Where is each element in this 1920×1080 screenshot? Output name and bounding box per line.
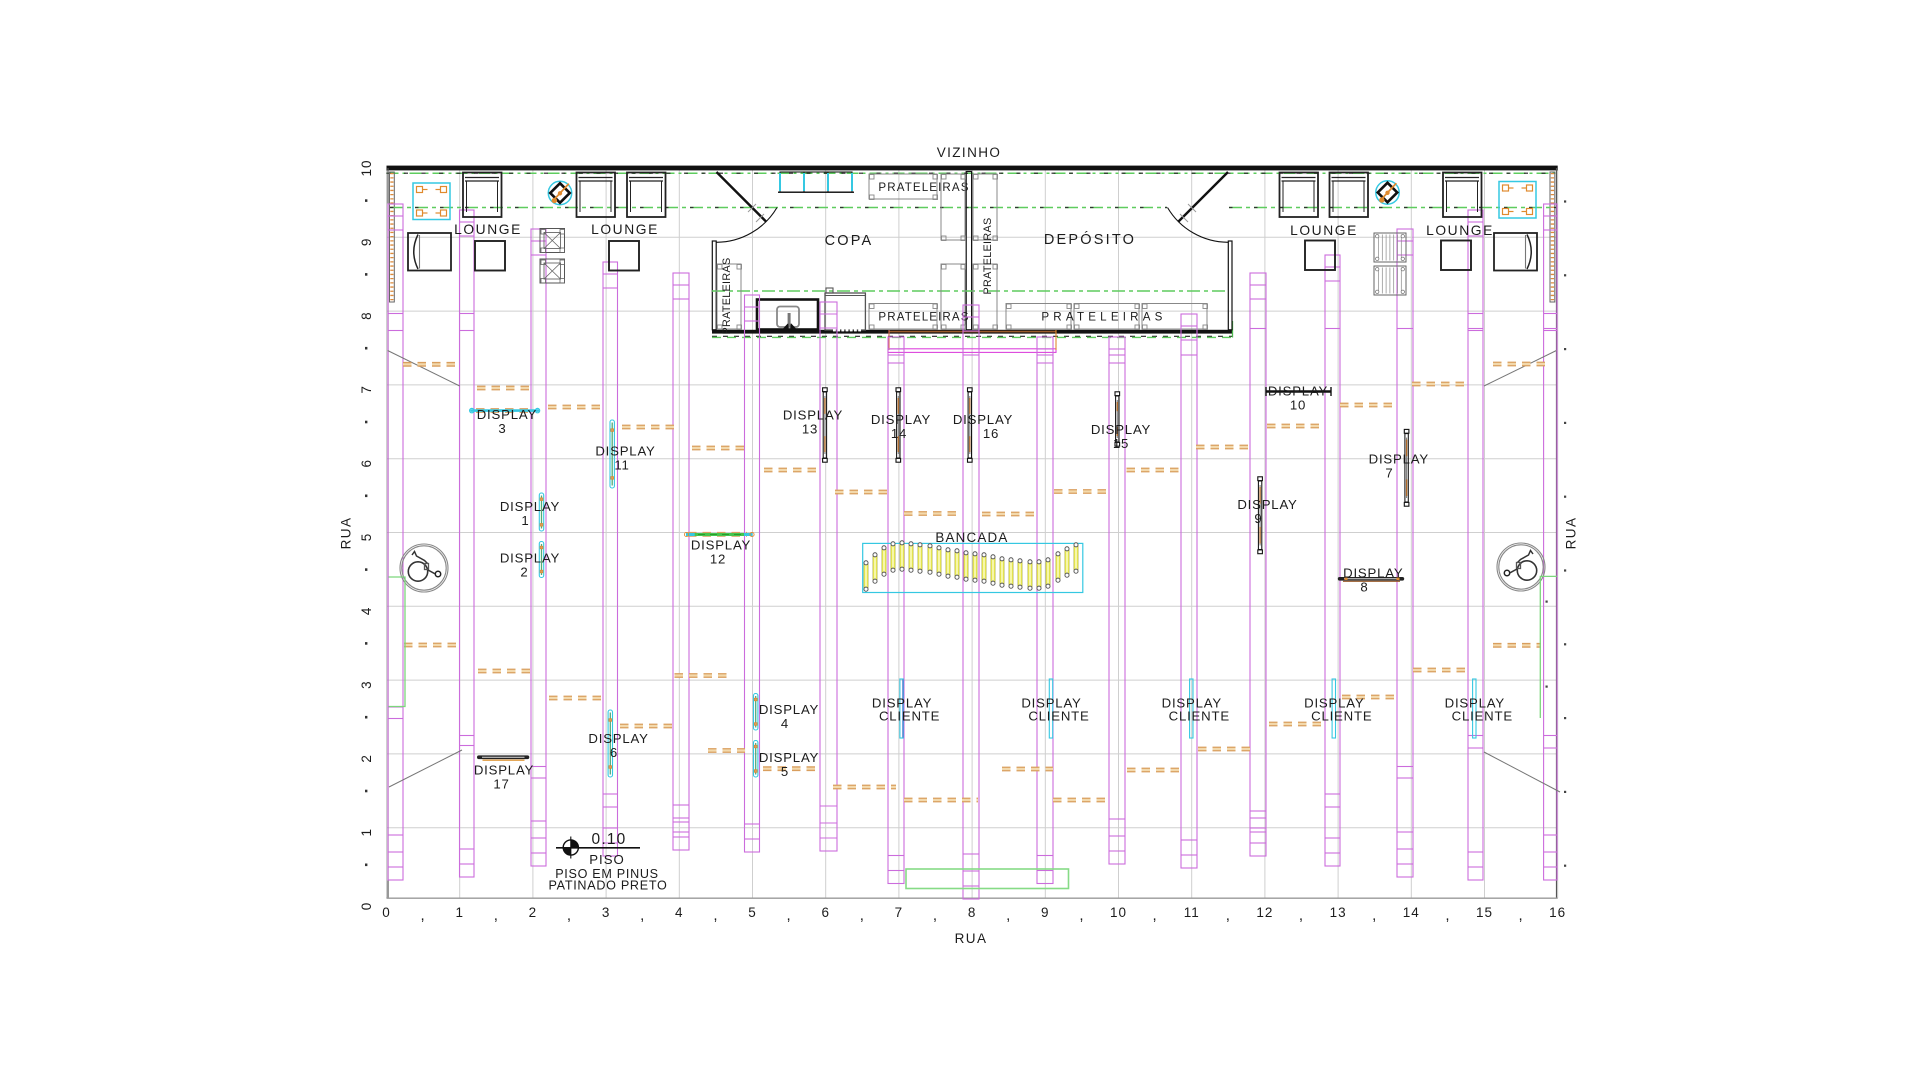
svg-text:13: 13 [1330, 905, 1347, 920]
svg-text:8: 8 [1360, 580, 1368, 595]
svg-text:8: 8 [359, 311, 374, 320]
svg-text:DISPLAY: DISPLAY [1369, 451, 1429, 466]
svg-text:,: , [1226, 907, 1231, 924]
svg-text:LOUNGE: LOUNGE [1426, 223, 1494, 238]
svg-text:CLIENTE: CLIENTE [1452, 709, 1513, 724]
svg-text:1: 1 [359, 828, 374, 837]
svg-text:2: 2 [529, 905, 538, 920]
svg-text:LOUNGE: LOUNGE [591, 222, 659, 237]
svg-text:PISO: PISO [589, 852, 625, 867]
svg-text:CLIENTE: CLIENTE [879, 709, 940, 724]
svg-text:,: , [860, 907, 865, 924]
svg-text:0.10: 0.10 [592, 831, 627, 848]
svg-text:16: 16 [983, 426, 999, 441]
svg-text:3: 3 [498, 421, 506, 436]
svg-text:RUA: RUA [955, 931, 988, 946]
svg-text:12: 12 [710, 552, 726, 567]
svg-text:DISPLAY: DISPLAY [1268, 384, 1328, 399]
svg-text:DISPLAY: DISPLAY [595, 444, 655, 459]
svg-text:,: , [1006, 907, 1011, 924]
svg-text:,: , [1079, 907, 1084, 924]
svg-text:16: 16 [1549, 905, 1566, 920]
svg-text:DISPLAY: DISPLAY [1237, 497, 1297, 512]
svg-text:,: , [1519, 907, 1524, 924]
svg-text:DISPLAY: DISPLAY [871, 412, 931, 427]
svg-text:10: 10 [1290, 398, 1306, 413]
svg-text:6: 6 [359, 459, 374, 468]
svg-text:LOUNGE: LOUNGE [454, 222, 522, 237]
svg-text:VIZINHO: VIZINHO [937, 145, 1002, 160]
svg-text:DISPLAY: DISPLAY [500, 551, 560, 566]
svg-text:,: , [1153, 907, 1158, 924]
svg-text:14: 14 [1403, 905, 1420, 920]
svg-text:3: 3 [359, 680, 374, 689]
svg-text:1: 1 [455, 905, 464, 920]
svg-text:,: , [787, 907, 792, 924]
svg-text:DEPÓSITO: DEPÓSITO [1044, 231, 1136, 248]
svg-text:PRATELEIRAS: PRATELEIRAS [721, 258, 733, 335]
svg-text:CLIENTE: CLIENTE [1169, 709, 1230, 724]
svg-text:DISPLAY: DISPLAY [783, 408, 843, 423]
svg-text:DISPLAY: DISPLAY [1343, 566, 1403, 581]
svg-text:,: , [567, 907, 572, 924]
svg-text:PRATELEIRAS: PRATELEIRAS [982, 218, 994, 295]
svg-text:8: 8 [968, 905, 977, 920]
svg-text:,: , [713, 907, 718, 924]
svg-text:,: , [640, 907, 645, 924]
svg-text:LOUNGE: LOUNGE [1290, 223, 1358, 238]
svg-text:PATINADO PRETO: PATINADO PRETO [549, 879, 668, 893]
svg-text:DISPLAY: DISPLAY [691, 538, 751, 553]
svg-text:10: 10 [359, 159, 374, 176]
svg-text:11: 11 [1184, 905, 1200, 920]
svg-text:0: 0 [382, 905, 391, 920]
svg-text:RUA: RUA [339, 517, 354, 550]
svg-text:9: 9 [1041, 905, 1050, 920]
svg-text:DISPLAY: DISPLAY [500, 499, 560, 514]
svg-text:,: , [1372, 907, 1377, 924]
svg-text:2: 2 [359, 754, 374, 763]
svg-text:DISPLAY: DISPLAY [477, 407, 537, 422]
svg-text:PRATELEIRAS: PRATELEIRAS [878, 181, 969, 194]
svg-text:,: , [1299, 907, 1304, 924]
svg-text:15: 15 [1476, 905, 1493, 920]
svg-text:11: 11 [614, 458, 629, 473]
svg-text:COPA: COPA [825, 233, 874, 249]
svg-text:CLIENTE: CLIENTE [1028, 709, 1089, 724]
svg-text:RUA: RUA [1564, 517, 1579, 550]
svg-text:BANCADA: BANCADA [935, 530, 1008, 545]
svg-text:,: , [1445, 907, 1450, 924]
svg-text:9: 9 [359, 238, 374, 247]
svg-text:13: 13 [802, 422, 818, 437]
svg-text:1: 1 [521, 513, 529, 528]
svg-text:6: 6 [610, 745, 618, 760]
svg-text:7: 7 [895, 905, 904, 920]
svg-text:10: 10 [1110, 905, 1127, 920]
svg-text:7: 7 [359, 385, 374, 394]
svg-text:4: 4 [675, 905, 684, 920]
svg-text:DISPLAY: DISPLAY [953, 412, 1013, 427]
svg-text:17: 17 [493, 777, 509, 792]
svg-text:,: , [494, 907, 499, 924]
svg-text:,: , [933, 907, 938, 924]
svg-text:4: 4 [359, 607, 374, 616]
svg-text:CLIENTE: CLIENTE [1311, 709, 1372, 724]
svg-text:DISPLAY: DISPLAY [759, 702, 819, 717]
svg-text:0: 0 [359, 902, 374, 911]
svg-text:6: 6 [821, 905, 830, 920]
svg-text:5: 5 [781, 764, 789, 779]
svg-text:DISPLAY: DISPLAY [474, 763, 534, 778]
svg-text:15: 15 [1113, 436, 1129, 451]
svg-text:2: 2 [520, 565, 528, 580]
svg-text:5: 5 [748, 905, 757, 920]
svg-text:PRATELEIRAS: PRATELEIRAS [1041, 311, 1166, 324]
svg-text:5: 5 [359, 533, 374, 542]
svg-text:7: 7 [1385, 465, 1393, 480]
svg-text:DISPLAY: DISPLAY [588, 731, 648, 746]
svg-text:DISPLAY: DISPLAY [759, 750, 819, 765]
svg-text:12: 12 [1256, 905, 1273, 920]
svg-text:9: 9 [1254, 511, 1262, 526]
svg-text:DISPLAY: DISPLAY [1091, 422, 1151, 437]
svg-text:4: 4 [781, 716, 789, 731]
svg-text:14: 14 [891, 426, 907, 441]
svg-text:3: 3 [602, 905, 611, 920]
svg-text:PRATELEIRAS: PRATELEIRAS [878, 311, 969, 324]
svg-text:,: , [421, 907, 426, 924]
